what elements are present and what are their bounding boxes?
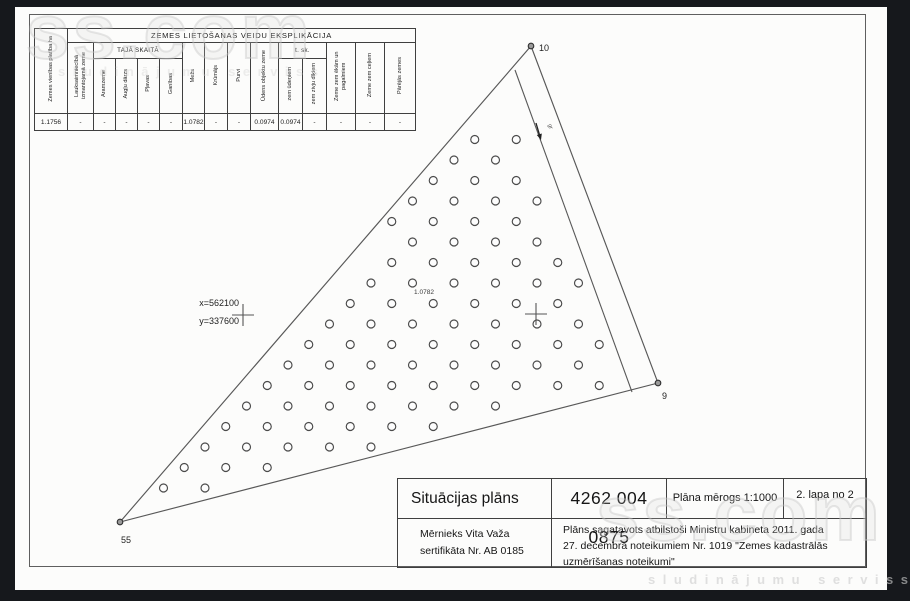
- forest-dot: [409, 402, 417, 410]
- forest-dot: [263, 382, 271, 390]
- forest-dot: [367, 361, 375, 369]
- survey-point-label-9: 9: [662, 391, 667, 401]
- cadastre-number-cell: 4262 004 0875: [551, 478, 667, 519]
- forest-dot: [263, 464, 271, 472]
- forest-dot: [326, 320, 334, 328]
- forest-dot: [450, 238, 458, 246]
- screenshot-root: { "watermark": { "brand": "ss.com", "tag…: [0, 0, 910, 601]
- forest-dot: [554, 259, 562, 267]
- forest-dot: [388, 341, 396, 349]
- forest-dot: [554, 382, 562, 390]
- document-type-cell: Situācijas plāns: [397, 478, 552, 519]
- forest-dot: [367, 402, 375, 410]
- forest-dot: [595, 341, 603, 349]
- forest-dot: [263, 423, 271, 431]
- survey-point-9: [655, 380, 661, 386]
- forest-dot: [305, 423, 313, 431]
- surveyor-cell: Mērnieks Vita Važa sertifikāta Nr. AB 01…: [397, 518, 552, 568]
- forest-dot: [429, 218, 437, 226]
- forest-dot: [180, 464, 188, 472]
- forest-dot: [471, 259, 479, 267]
- survey-point-label-55: 55: [121, 535, 131, 545]
- forest-dot: [533, 238, 541, 246]
- forest-dot: [429, 341, 437, 349]
- forest-dot: [429, 177, 437, 185]
- forest-dot: [388, 300, 396, 308]
- forest-dot: [512, 300, 520, 308]
- forest-dot: [512, 218, 520, 226]
- forest-dot: [346, 382, 354, 390]
- forest-dot: [450, 402, 458, 410]
- flow-arrow-label: gr: [546, 123, 553, 130]
- forest-dot: [471, 177, 479, 185]
- forest-dot: [388, 423, 396, 431]
- forest-dot: [305, 341, 313, 349]
- forest-dot: [471, 300, 479, 308]
- forest-dot: [346, 341, 354, 349]
- forest-dot: [243, 443, 251, 451]
- forest-dot: [512, 177, 520, 185]
- forest-dot: [326, 361, 334, 369]
- note-line-3: uzmērīšanas noteikumi": [563, 555, 866, 571]
- forest-dot: [450, 361, 458, 369]
- forest-dot: [533, 279, 541, 287]
- forest-dot: [429, 423, 437, 431]
- forest-dot: [243, 402, 251, 410]
- forest-dot: [595, 382, 603, 390]
- forest-dot: [222, 423, 230, 431]
- forest-dot: [346, 300, 354, 308]
- forest-dot: [512, 382, 520, 390]
- ditch-line: [515, 70, 632, 392]
- forest-dot: [409, 197, 417, 205]
- forest-dot: [450, 279, 458, 287]
- forest-dot: [429, 382, 437, 390]
- forest-dot: [575, 361, 583, 369]
- note-line-1: Plāns sagatavots atbilstoši Ministru kab…: [563, 523, 866, 539]
- survey-point-55: [117, 519, 123, 525]
- forest-dot: [533, 197, 541, 205]
- surveyor-certificate: sertifikāta Nr. AB 0185: [420, 543, 551, 560]
- coordinate-label-x: x=562100: [199, 298, 239, 308]
- forest-dot: [492, 361, 500, 369]
- forest-area-label: 1.0782: [414, 289, 434, 296]
- survey-point-label-10: 10: [539, 43, 549, 53]
- forest-dot: [492, 320, 500, 328]
- forest-dot: [429, 259, 437, 267]
- forest-dot: [409, 320, 417, 328]
- forest-dot: [346, 423, 354, 431]
- forest-dot: [492, 156, 500, 164]
- forest-dot: [388, 218, 396, 226]
- forest-dot: [222, 464, 230, 472]
- forest-dot: [450, 320, 458, 328]
- forest-dot: [492, 279, 500, 287]
- note-line-2: 27. decembra noteikumiem Nr. 1019 "Zemes…: [563, 539, 866, 555]
- forest-dot: [450, 156, 458, 164]
- forest-dot: [554, 300, 562, 308]
- scale-cell: Plāna mērogs 1:1000: [666, 478, 784, 519]
- coordinate-label-y: y=337600: [199, 316, 239, 326]
- forest-dot: [201, 484, 209, 492]
- forest-dot: [471, 136, 479, 144]
- forest-dot: [450, 197, 458, 205]
- forest-dot: [512, 136, 520, 144]
- forest-dot: [492, 197, 500, 205]
- forest-dot: [409, 361, 417, 369]
- forest-dot: [533, 320, 541, 328]
- forest-dot: [284, 443, 292, 451]
- forest-dot: [201, 443, 209, 451]
- forest-dot: [429, 300, 437, 308]
- forest-dot: [575, 320, 583, 328]
- forest-dot: [409, 279, 417, 287]
- forest-dot: [512, 341, 520, 349]
- forest-dot: [512, 259, 520, 267]
- forest-dot: [575, 279, 583, 287]
- forest-dot: [388, 382, 396, 390]
- survey-point-10: [528, 43, 534, 49]
- forest-dot: [471, 382, 479, 390]
- forest-dot: [471, 341, 479, 349]
- forest-dot: [471, 218, 479, 226]
- surveyor-name: Mērnieks Vita Važa: [420, 526, 551, 543]
- flow-arrow-head-icon: [537, 134, 542, 140]
- forest-dot: [284, 402, 292, 410]
- forest-dot: [409, 238, 417, 246]
- forest-dot: [533, 361, 541, 369]
- forest-dot: [326, 402, 334, 410]
- forest-dot: [305, 382, 313, 390]
- forest-dot: [326, 443, 334, 451]
- forest-dot: [554, 341, 562, 349]
- forest-dot: [388, 259, 396, 267]
- forest-dot: [492, 402, 500, 410]
- forest-dot: [160, 484, 168, 492]
- forest-dot: [367, 279, 375, 287]
- forest-dot: [492, 238, 500, 246]
- page-number-cell: 2. lapa no 2: [783, 478, 867, 519]
- regulation-note-cell: Plāns sagatavots atbilstoši Ministru kab…: [551, 518, 867, 568]
- forest-dot: [367, 320, 375, 328]
- forest-dot: [284, 361, 292, 369]
- forest-dot: [367, 443, 375, 451]
